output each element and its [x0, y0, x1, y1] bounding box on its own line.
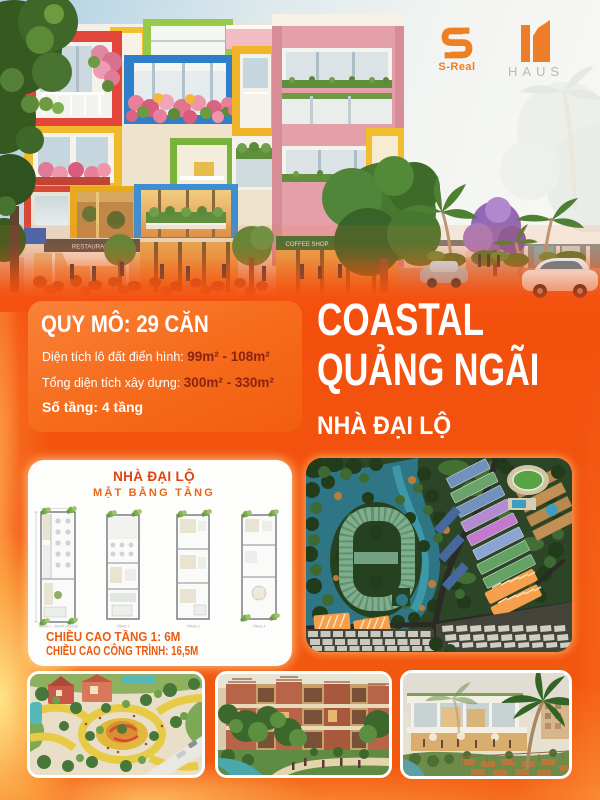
- svg-text:TẦNG 3: TẦNG 3: [187, 625, 200, 629]
- svg-text:TẦNG 4: TẦNG 4: [253, 625, 266, 629]
- svg-text:TẦNG 1 - SHOP HOUSE: TẦNG 1 - SHOP HOUSE: [38, 625, 79, 629]
- svg-text:TẦNG 2: TẦNG 2: [117, 625, 130, 629]
